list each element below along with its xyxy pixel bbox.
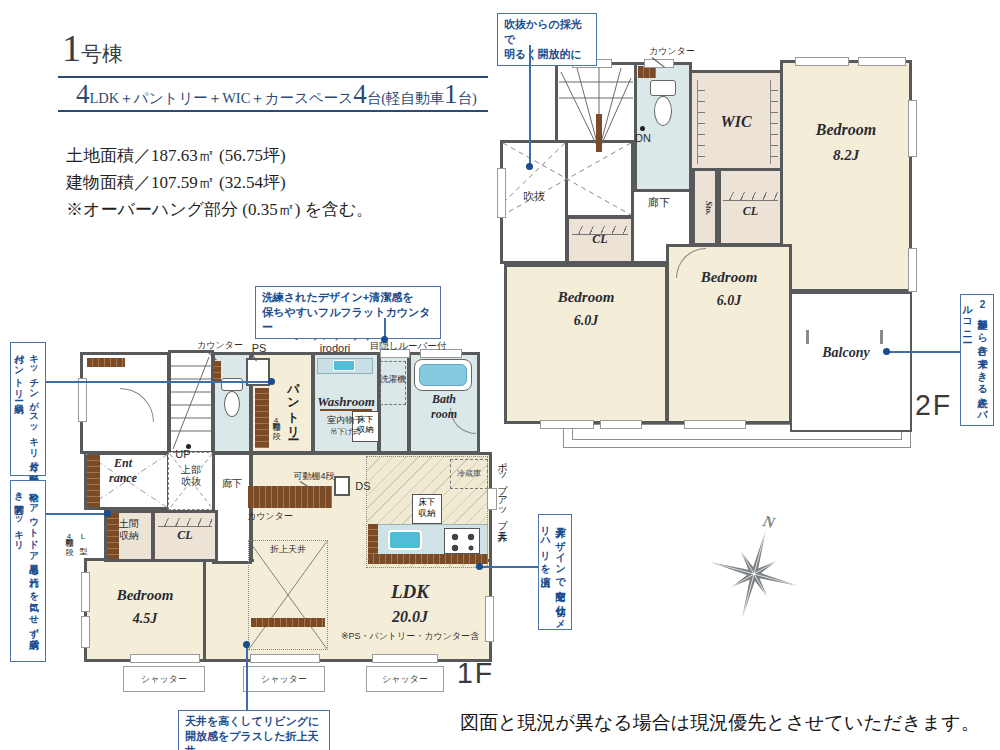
closet-hanger-mid [723,192,778,201]
ldk-note: ※PS・パントリー・カウンター含 [330,631,490,642]
room-name: Bedroom [666,268,792,287]
ldk-name: LDK [330,580,490,604]
area-info: 土地面積／187.63㎡ (56.75坪) 建物面積／107.59㎡ (32.5… [66,142,373,223]
callout-line2: 明るく開放的に [504,47,590,62]
toilet-counter-1f [214,361,221,383]
callout-entrance-storage: 靴やアウトドア用品も汚れを気にせず収納でき玄関スッキリ [10,480,46,662]
bedroom-4-5-label: Bedroom 4.5J [84,586,206,627]
wic-label: WIC [689,112,783,132]
doma-line2: 収納 [104,530,154,542]
connector-balcony [888,351,960,353]
connector-counter [384,318,386,338]
connector-entrance [46,513,108,515]
toilet-bowl-2f [654,96,672,126]
connector-dot [381,336,388,343]
ldk-counter-label: カウンター [240,511,300,522]
balcony-room [790,292,912,432]
entrance-shelf-label: 可動棚4段 [64,508,74,564]
callout-line2: 保ちやすいフルフラットカウンター [262,305,434,335]
toilet-tank-1f [221,378,243,391]
floor-label-2f: 2F [915,388,952,422]
shutter-box-3: シャッター [366,666,444,692]
callout-coffered: 天井を高くしてリビングに 開放感をプラスした折上天井 [178,710,330,750]
building-number: 1 [62,27,81,69]
washroom-underline [320,409,372,411]
shutter-box-2: シャッター [243,666,325,692]
pantry-label: パントリー [286,360,300,448]
closet-hanger-1f [158,518,212,527]
window [372,654,438,663]
overhang-note: ※オーバーハング部分 (0.35㎡) を含む。 [66,196,373,223]
washer-label: 洗濯機 [379,374,407,384]
bedroom-8-2 [780,60,912,292]
callout-ceiling-design: 天井デザインで空間を仕切りメリハリを演出 [538,514,572,630]
popup-ceiling-label: ポップアップ天井 [496,444,508,534]
pantry-shelf [255,388,269,448]
l-type-label: L型 [78,524,88,548]
window [684,420,746,429]
callout-balcony: 2部屋から行き来できる続きバルコニー [960,294,994,426]
window [250,654,320,663]
room-size: 6.0J [666,292,792,310]
connector-pantry [46,381,272,383]
room-size: 6.0J [504,312,668,330]
ldk-shelf-label: 可動棚4段 [284,471,344,482]
closet-mid-label: CL [718,204,783,219]
indoor-drying-label: 室内物干 [314,415,376,426]
ent-line2: rance [92,471,154,486]
floorplan-sheet: 1号棟 4LDK＋パントリー＋WIC＋カースペース4台(軽自動車1台) 土地面積… [0,0,1000,750]
stairs-2f [559,66,633,152]
connector-dot [526,163,533,170]
window [78,378,87,422]
toilet-bowl-1f [224,391,240,417]
callout-pantry-storage: キッチンがスッキリ片付く可動棚付パントリー収納 [10,342,46,476]
connector-dot [883,348,890,355]
coffered-beam [251,618,325,627]
connector-dot [243,641,250,648]
callout-flat-counter: 洗練されたデザイン+清潔感を 保ちやすいフルフラットカウンター [255,286,441,339]
balcony-tick [880,330,883,344]
uv-line2: 吹抜 [168,476,214,488]
pantry-shelf-label: 可動棚4段 [271,392,281,448]
land-area: 土地面積／187.63㎡ (56.75坪) [66,142,373,169]
coffered-x [249,541,327,649]
irodori-label: irodori [310,342,360,355]
fridge-label: 冷蔵庫 [457,469,481,478]
underfloor-storage-kitchen: 床下 収納 [412,494,442,524]
connector-dot [268,378,275,385]
callout-line1: 吹抜からの採光で [504,17,590,47]
connector-dot [104,510,111,517]
callout-line2: 開放感をプラスした折上天井 [185,729,323,750]
hanging-type-label: 吊下げ式 [316,427,374,436]
uv-line1: 上部 [168,464,214,476]
ps-label: PS [246,342,272,355]
header-rule-bottom [58,110,488,112]
doma-line1: 土間 [104,518,154,530]
floor-label-1f: 1F [457,656,494,690]
doma-label: 土間 収納 [104,518,154,542]
hallway-2f-label: 廊下 [636,196,682,209]
window [795,57,849,66]
ds-label: DS [350,480,376,493]
compass-north-label: N [760,512,778,532]
ldk-counter [248,486,332,508]
bedroom-8-2-label: Bedroom 8.2J [780,120,912,165]
shutter-label: シャッター [382,673,428,686]
shutter-box-1: シャッター [123,666,205,692]
bath-line2: room [408,407,480,422]
bath-line1: Bath [408,392,480,407]
toilet-tank-2f [650,80,676,96]
entrance-label: Ent rance [92,456,154,486]
connector-coffered [246,646,248,710]
spec-big-4ldk: 4 [76,79,90,109]
room-name: Bedroom [84,586,206,605]
page-title: 1号棟 [62,26,123,70]
hallway-1f-label: 廊下 [212,478,252,490]
ldk-label: LDK 20.0J ※PS・パントリー・カウンター含 [330,580,490,642]
ldk-size: 20.0J [330,607,490,627]
kitchen-sink [388,530,422,550]
spec-line: 4LDK＋パントリー＋WIC＋カースペース4台(軽自動車1台) [76,79,488,109]
shutter-label: シャッター [141,673,187,686]
header-rule-top [58,76,488,78]
sto-label: Sto. [696,186,714,230]
window [540,420,594,429]
connector-ceiling [481,566,538,568]
bedroom-6-mid-label: Bedroom 6.0J [666,268,792,309]
hallway-1f-room [212,452,252,564]
building-area: 建物面積／107.59㎡ (32.54坪) [66,169,373,196]
washroom-label: Washroom [314,394,378,410]
connector-atrium [529,45,531,165]
underfloor-line1: 床下 [413,497,441,508]
sanitary-sink [333,360,355,371]
stove [444,528,480,554]
closet-atrium-label: CL [566,232,634,247]
spec-big-cars: 4 [353,79,367,109]
bathtub-water [419,364,467,386]
atrium-label: 吹抜 [500,190,568,203]
ent-line1: Ent [92,456,154,471]
atrium-x-marks [503,143,631,215]
spec-text-2: 台(軽自動車 [367,90,444,106]
callout-atrium-light: 吹抜からの採光で 明るく開放的に [497,13,597,66]
connector-dot [476,563,483,570]
room-size: 4.5J [84,610,206,628]
counter-label-2f: カウンター [640,46,704,57]
upper-void-label: 上部 吹抜 [168,464,214,488]
window [600,420,642,429]
closet-1f-label: CL [152,528,218,543]
room-name: Bedroom [504,288,668,307]
bathroom-label: Bath room [408,392,480,422]
disclaimer-text: 図面と現況が異なる場合は現況優先とさせていただきます。 [460,710,996,736]
stairs-1f [171,353,211,451]
spec-text-3: 台) [458,90,477,106]
shutter-label: シャッター [261,673,307,686]
spec-text-1: LDK＋パントリー＋WIC＋カースペース [90,90,354,106]
window [130,654,200,663]
window [858,57,906,66]
callout-line1: 洗練されたデザイン+清潔感を [262,290,434,305]
room-size: 8.2J [780,146,912,165]
dn-dot [640,126,645,131]
window [908,248,917,292]
bedroom-6-left-label: Bedroom 6.0J [504,288,668,329]
kitchen-counter-front [368,554,488,564]
up-label: UP [168,448,198,461]
room-name: Bedroom [780,120,912,140]
balcony-tick [806,330,809,344]
fridge-space: 冷蔵庫 [450,459,488,489]
building-suffix: 号棟 [81,42,123,66]
underfloor-line2: 収納 [413,508,441,519]
spec-big-kei: 1 [444,79,458,109]
louver-label: 目隠しルーバー付 [368,340,448,351]
coffered-label: 折上天井 [250,544,326,555]
dn-label: DN [626,132,660,145]
counter-label-1f: カウンター [194,340,246,351]
callout-line1: 天井を高くしてリビングに [185,714,323,729]
compass-icon: N [695,512,813,632]
porch-shelf [87,358,125,367]
